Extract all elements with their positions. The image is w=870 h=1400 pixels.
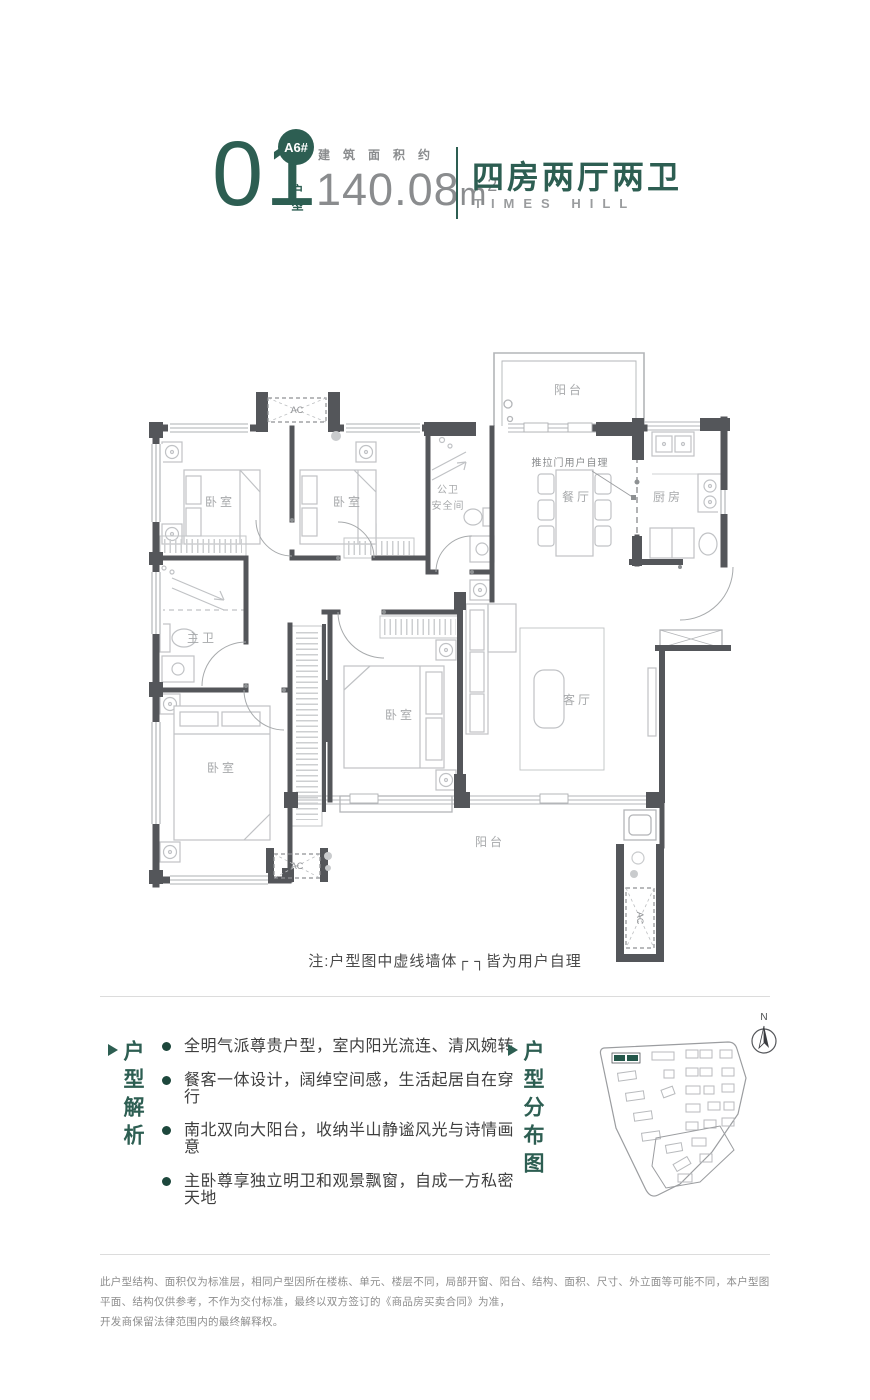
door-arcs [202,520,733,730]
area-number: 140.08 [316,164,460,215]
room-label-bedroom-d: 卧室 [385,707,415,722]
sliding-door-annotation: 推拉门用户自理 [532,456,609,469]
highlighted-building [612,1053,640,1063]
header-divider [456,147,458,219]
area-value: 140.08m2 [316,164,498,216]
ac-label-top: AC [291,405,304,415]
site-boundary [600,1042,746,1196]
disclaimer-line-1: 此户型结构、面积仅为标准层，相同户型因所在楼栋、单元、楼层不同，局部开窗、阳台、… [100,1272,776,1312]
ac-label-bottom-left: AC [291,861,304,871]
room-label-public-bath-2: 安全间 [432,499,465,512]
ac-label-bottom-right: AC [635,912,645,925]
furniture-layer [160,432,722,862]
layout-type-title: 四房两厅两卫 [472,152,682,198]
divider-bottom [100,1254,770,1255]
floorplan-poster: 01 A6# 户型 建筑面积约 140.08m2 四房两厅两卫 TIMES HI… [0,0,870,1400]
area-caption: 建筑面积约 [318,146,443,163]
analysis-pointer-icon [108,1044,118,1056]
floor-plan: AC AC AC [140,340,750,990]
room-label-balcony-bottom: 阳台 [475,834,505,849]
room-label-living: 客厅 [563,692,593,707]
analysis-bullet: 餐客一体设计，阔绰空间感，生活起居自在穿行 [158,1073,518,1107]
project-name-en: TIMES HILL [474,196,636,211]
analysis-bullet: 南北双向大阳台，收纳半山静谧风光与诗情画意 [158,1123,518,1157]
compass-icon: N [742,1010,786,1062]
analysis-bullet-list: 全明气派尊贵户型，室内阳光流连、清风婉转 餐客一体设计，阔绰空间感，生活起居自在… [158,1039,518,1225]
room-label-bedroom-c: 卧室 [207,760,237,775]
disclaimer: 此户型结构、面积仅为标准层，相同户型因所在楼栋、单元、楼层不同，局部开窗、阳台、… [100,1272,776,1332]
site-plan [582,1038,752,1208]
disclaimer-line-2: 开发商保留法律范围内的最终解释权。 [100,1312,776,1332]
room-label-bedroom-b: 卧室 [333,494,363,509]
analysis-bullet: 全明气派尊贵户型，室内阳光流连、清风婉转 [158,1039,518,1056]
room-label-bedroom-a: 卧室 [205,494,235,509]
building-badge: A6# [278,129,314,165]
plan-note: 注:户型图中虚线墙体┌ ┐皆为用户自理 [140,950,750,971]
room-label-public-bath-1: 公卫 [437,485,459,496]
room-label-dining: 餐厅 [562,489,592,504]
distribution-pointer-icon [508,1044,518,1056]
room-label-balcony-top: 阳台 [554,382,584,397]
distribution-title: 户型分布图 [522,1040,543,1180]
annotation-dot [631,495,636,500]
analysis-title: 户型解析 [122,1040,143,1152]
compass-label: N [760,1012,767,1023]
unit-type-label: 户型 [289,184,306,214]
room-label-master-bath: 主卫 [187,631,217,645]
divider-top [100,996,770,997]
analysis-bullet: 主卧尊享独立明卫和观景飘窗，自成一方私密天地 [158,1174,518,1208]
room-label-kitchen: 厨房 [653,489,683,504]
